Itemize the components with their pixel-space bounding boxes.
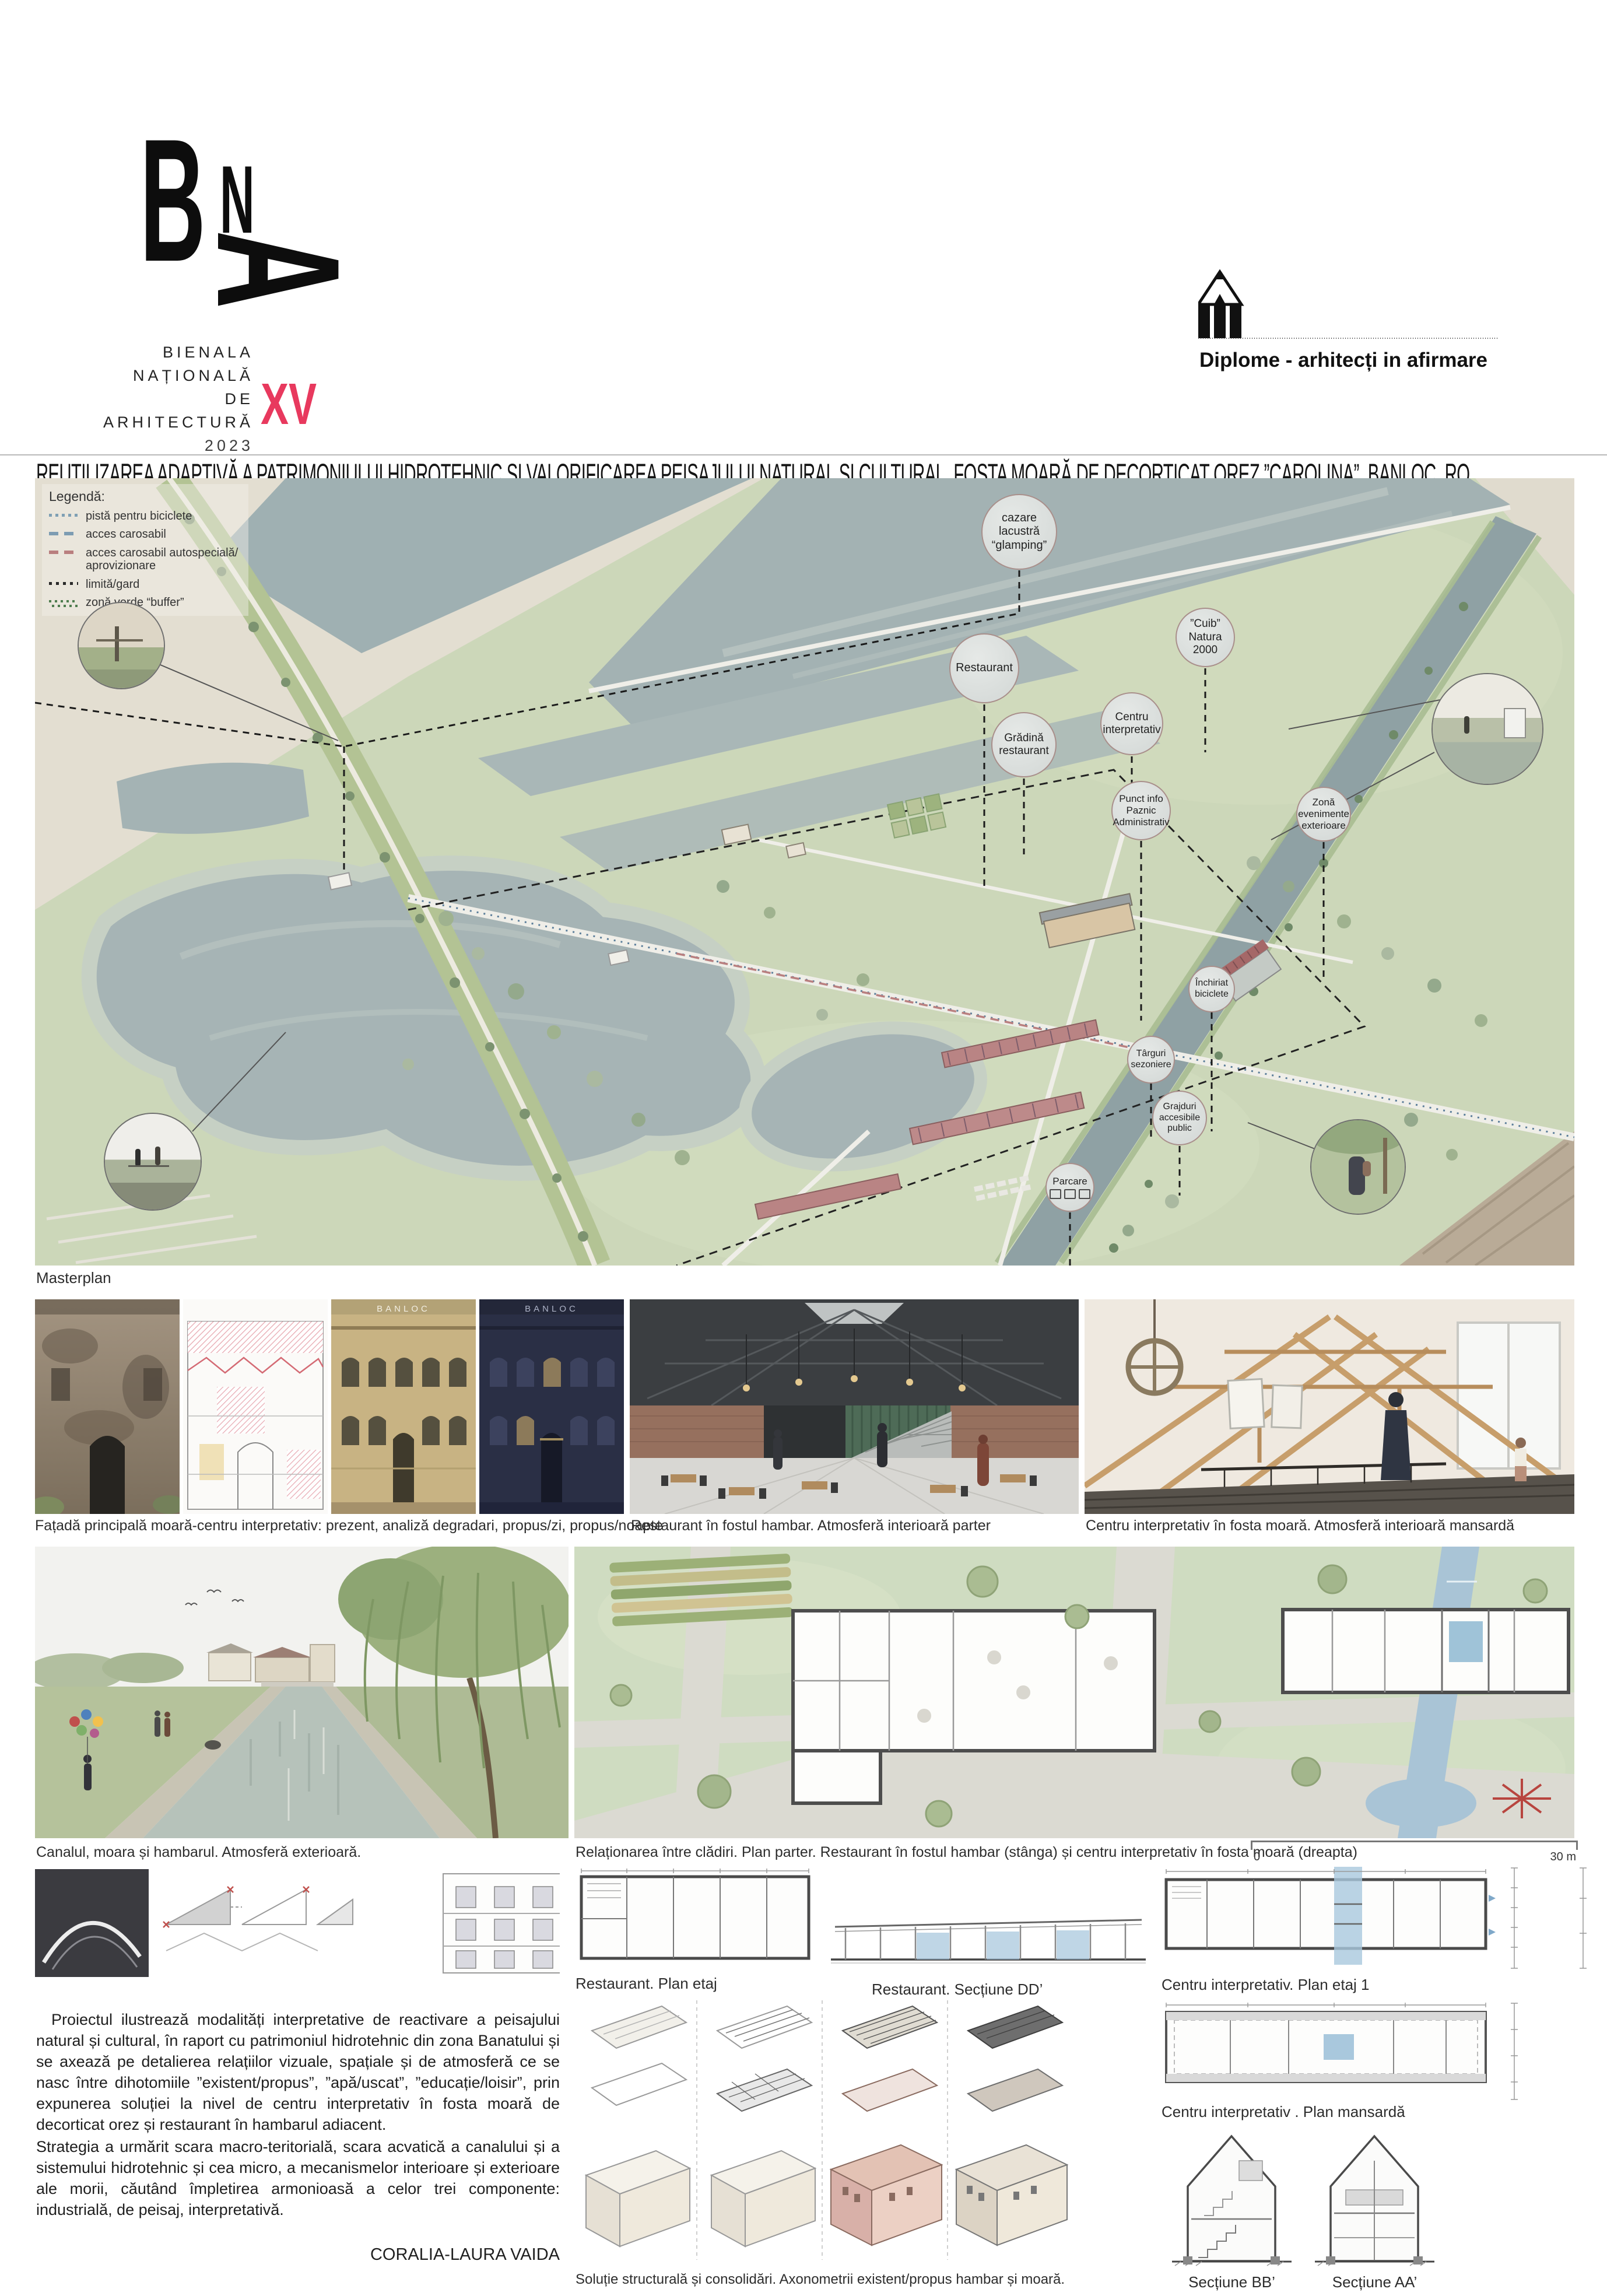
axo-column-2 xyxy=(711,2006,815,2246)
axo-column-4 xyxy=(956,2006,1067,2245)
legend-item-label: limită/gard xyxy=(86,578,139,591)
header: B N A BIENALA NAȚIONALĂ DE ARHITECTURĂ 2… xyxy=(0,0,1607,454)
legend-item: acces carosabil autospecială/ aprovizion… xyxy=(49,546,241,573)
child-silhouette xyxy=(1515,1438,1527,1481)
section-aa-label: Secțiune AA’ xyxy=(1312,2273,1437,2291)
axo-caption: Soluție structurală și consolidări. Axon… xyxy=(576,2272,1065,2288)
facade-proposed-day: BANLOC xyxy=(331,1299,476,1514)
restaurant-plan-label: Restaurant. Plan etaj xyxy=(576,1975,717,1993)
legend-item: pistă pentru biciclete xyxy=(49,510,241,523)
logo-letter-a: A xyxy=(181,230,362,309)
biennial-line: ARHITECTURĂ xyxy=(50,411,254,434)
map-label-inchiriat-biciclete: Închiriat biciclete xyxy=(1188,966,1235,1012)
ci-plan1-label: Centru interpretativ. Plan etaj 1 xyxy=(1162,1976,1369,1994)
biennial-line: NAȚIONALĂ xyxy=(50,364,254,387)
map-label-targuri-sezoniere: Târguri sezoniere xyxy=(1127,1036,1175,1084)
attic-interior-render xyxy=(1085,1299,1574,1514)
author-name: CORALIA-LAURA VAIDA xyxy=(268,2245,560,2265)
site-plan xyxy=(574,1547,1574,1838)
bike-path-swatch xyxy=(49,514,78,517)
map-label-zona-evenimente: Zonă evenimente exterioare xyxy=(1296,787,1351,842)
truss-sketches xyxy=(163,1887,353,1951)
photo-inset-gate xyxy=(78,602,165,689)
biennial-name: BIENALA NAȚIONALĂ DE ARHITECTURĂ 2023 xyxy=(50,341,254,457)
facade-strip: BANLOC BANLOC xyxy=(35,1299,624,1514)
special-access-swatch xyxy=(49,551,78,554)
scale-end: 30 m xyxy=(1550,1850,1576,1864)
section-bb-label: Secțiune BB’ xyxy=(1169,2273,1294,2291)
program-label: Diplome - arhitecți in afirmare xyxy=(1199,349,1487,372)
green-buffer-swatch xyxy=(49,600,78,607)
facade-sign-night: BANLOC xyxy=(525,1304,578,1314)
map-label-grajduri: Grajduri accesibile public xyxy=(1152,1091,1207,1145)
ci-mansarda-label: Centru interpretativ . Plan mansardă xyxy=(1162,2103,1405,2121)
photo-inset-cyclists xyxy=(104,1113,202,1211)
scale-bar: 0 30 m xyxy=(1251,1841,1578,1850)
legend-title: Legendă: xyxy=(49,489,241,504)
restaurant-interior-render xyxy=(630,1299,1079,1514)
section-bb-drawing xyxy=(1169,2126,1294,2269)
canal-through-plan xyxy=(1334,1867,1362,1965)
road-access-swatch xyxy=(49,532,78,535)
facade-proposed-night: BANLOC xyxy=(479,1299,624,1514)
facade-analysis xyxy=(183,1299,328,1514)
facade-present xyxy=(35,1299,180,1514)
legend-item: limită/gard xyxy=(49,578,241,591)
axo-column-1 xyxy=(586,2006,690,2246)
ci-plan-mansarda xyxy=(1160,1999,1496,2095)
biennial-year: 2023 xyxy=(50,434,254,457)
map-label-punct-info: Punct info Paznic Administrativ xyxy=(1111,781,1171,840)
attic-caption: Centru interpretativ în fosta moară. Atm… xyxy=(1086,1517,1514,1534)
map-label-restaurant: Restaurant xyxy=(949,633,1019,703)
project-description: Proiectul ilustrează modalități interpre… xyxy=(36,2009,560,2220)
restaurant-section-dd xyxy=(828,1902,1149,1968)
biennial-line: DE xyxy=(50,387,254,411)
pencil-icon xyxy=(1198,268,1507,350)
legend-item: acces carosabil xyxy=(49,528,241,541)
axonometric-diagrams xyxy=(574,1994,1079,2266)
restaurant-caption: Restaurant în fostul hambar. Atmosferă i… xyxy=(631,1517,991,1534)
map-legend: Legendă: pistă pentru biciclete acces ca… xyxy=(42,484,248,616)
map-label-glamping: cazare lacustră “glamping” xyxy=(981,494,1057,570)
photo-inset-wetland xyxy=(1431,673,1543,785)
map-label-parcare: Parcare xyxy=(1045,1163,1094,1212)
section-aa-drawing xyxy=(1312,2126,1437,2269)
dimension-chains xyxy=(1501,1863,1604,2108)
structural-vignettes xyxy=(35,1869,560,1977)
canal-caption: Canalul, moara și hambarul. Atmosferă ex… xyxy=(36,1844,361,1861)
legend-item-label: acces carosabil autospecială/ aprovizion… xyxy=(86,546,241,573)
pond xyxy=(117,763,309,834)
masterplan-figure: Legendă: pistă pentru biciclete acces ca… xyxy=(35,478,1574,1266)
parcare-icons xyxy=(1050,1189,1090,1199)
section-marker-arrows xyxy=(1489,1895,1496,1936)
biennial-line: BIENALA xyxy=(50,341,254,364)
garden-beds xyxy=(609,1554,793,1627)
axo-column-3 xyxy=(831,2006,942,2245)
description-paragraph-1: Proiectul ilustrează modalități interpre… xyxy=(36,2009,560,2135)
restaurant-floor-plan xyxy=(574,1866,816,1968)
facade-fragment-drawing xyxy=(443,1874,560,1973)
edition-number: XV xyxy=(261,371,317,438)
description-paragraph-2: Strategia a urmărit scara macro-teritori… xyxy=(36,2136,560,2220)
facade-caption: Fațadă principală moară-centru interpret… xyxy=(35,1517,663,1534)
canal-exterior-render xyxy=(35,1547,569,1838)
limit-fence-swatch xyxy=(49,582,78,585)
title-divider xyxy=(0,454,1607,455)
ci-plan-footprint xyxy=(1283,1610,1569,1692)
map-label-centru-interpretativ: Centru interpretativ xyxy=(1100,692,1163,755)
facade-sign-day: BANLOC xyxy=(377,1304,430,1314)
legend-item-label: acces carosabil xyxy=(86,528,166,541)
poster-board: B N A BIENALA NAȚIONALĂ DE ARHITECTURĂ 2… xyxy=(0,0,1607,2296)
siteplan-caption: Relaționarea între clădiri. Plan parter.… xyxy=(576,1844,1357,1861)
scale-start: 0 xyxy=(1254,1850,1260,1864)
masterplan-caption: Masterplan xyxy=(36,1269,111,1287)
bna-logo: B N A xyxy=(47,108,362,353)
map-label-gradina-restaurant: Grădină restaurant xyxy=(991,712,1057,777)
photo-inset-family xyxy=(1310,1119,1406,1215)
map-label-cuib-natura-2000: ”Cuib” Natura 2000 xyxy=(1176,608,1235,667)
ci-plan-etaj1 xyxy=(1160,1863,1496,1968)
legend-item-label: pistă pentru biciclete xyxy=(86,510,192,523)
